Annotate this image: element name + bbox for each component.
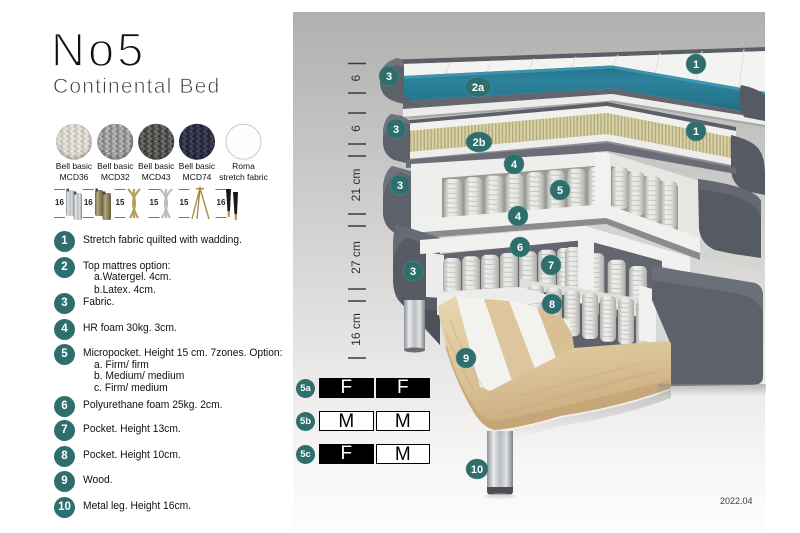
svg-text:16 cm: 16 cm xyxy=(349,313,363,346)
svg-text:16: 16 xyxy=(217,198,226,207)
svg-text:3: 3 xyxy=(410,266,416,278)
svg-text:15: 15 xyxy=(116,198,125,207)
svg-text:7: 7 xyxy=(548,260,554,272)
svg-text:5: 5 xyxy=(557,185,563,197)
svg-text:6: 6 xyxy=(517,242,523,254)
svg-text:4: 4 xyxy=(511,159,518,171)
svg-text:15: 15 xyxy=(150,198,159,207)
svg-text:4: 4 xyxy=(515,211,522,223)
svg-text:1: 1 xyxy=(693,59,699,71)
svg-text:9: 9 xyxy=(463,353,469,365)
svg-text:27 cm: 27 cm xyxy=(349,241,363,274)
svg-text:2a: 2a xyxy=(472,82,485,94)
svg-text:8: 8 xyxy=(549,299,555,311)
svg-text:1: 1 xyxy=(693,126,699,138)
svg-text:3: 3 xyxy=(393,124,399,136)
svg-text:2b: 2b xyxy=(473,137,486,149)
svg-text:16: 16 xyxy=(84,198,93,207)
svg-text:6: 6 xyxy=(349,125,363,132)
svg-text:3: 3 xyxy=(386,71,392,83)
svg-text:15: 15 xyxy=(180,198,189,207)
svg-text:6: 6 xyxy=(349,75,363,82)
svg-text:16: 16 xyxy=(55,198,64,207)
svg-text:10: 10 xyxy=(471,464,483,476)
svg-text:21 cm: 21 cm xyxy=(349,169,363,202)
svg-text:3: 3 xyxy=(397,180,403,192)
